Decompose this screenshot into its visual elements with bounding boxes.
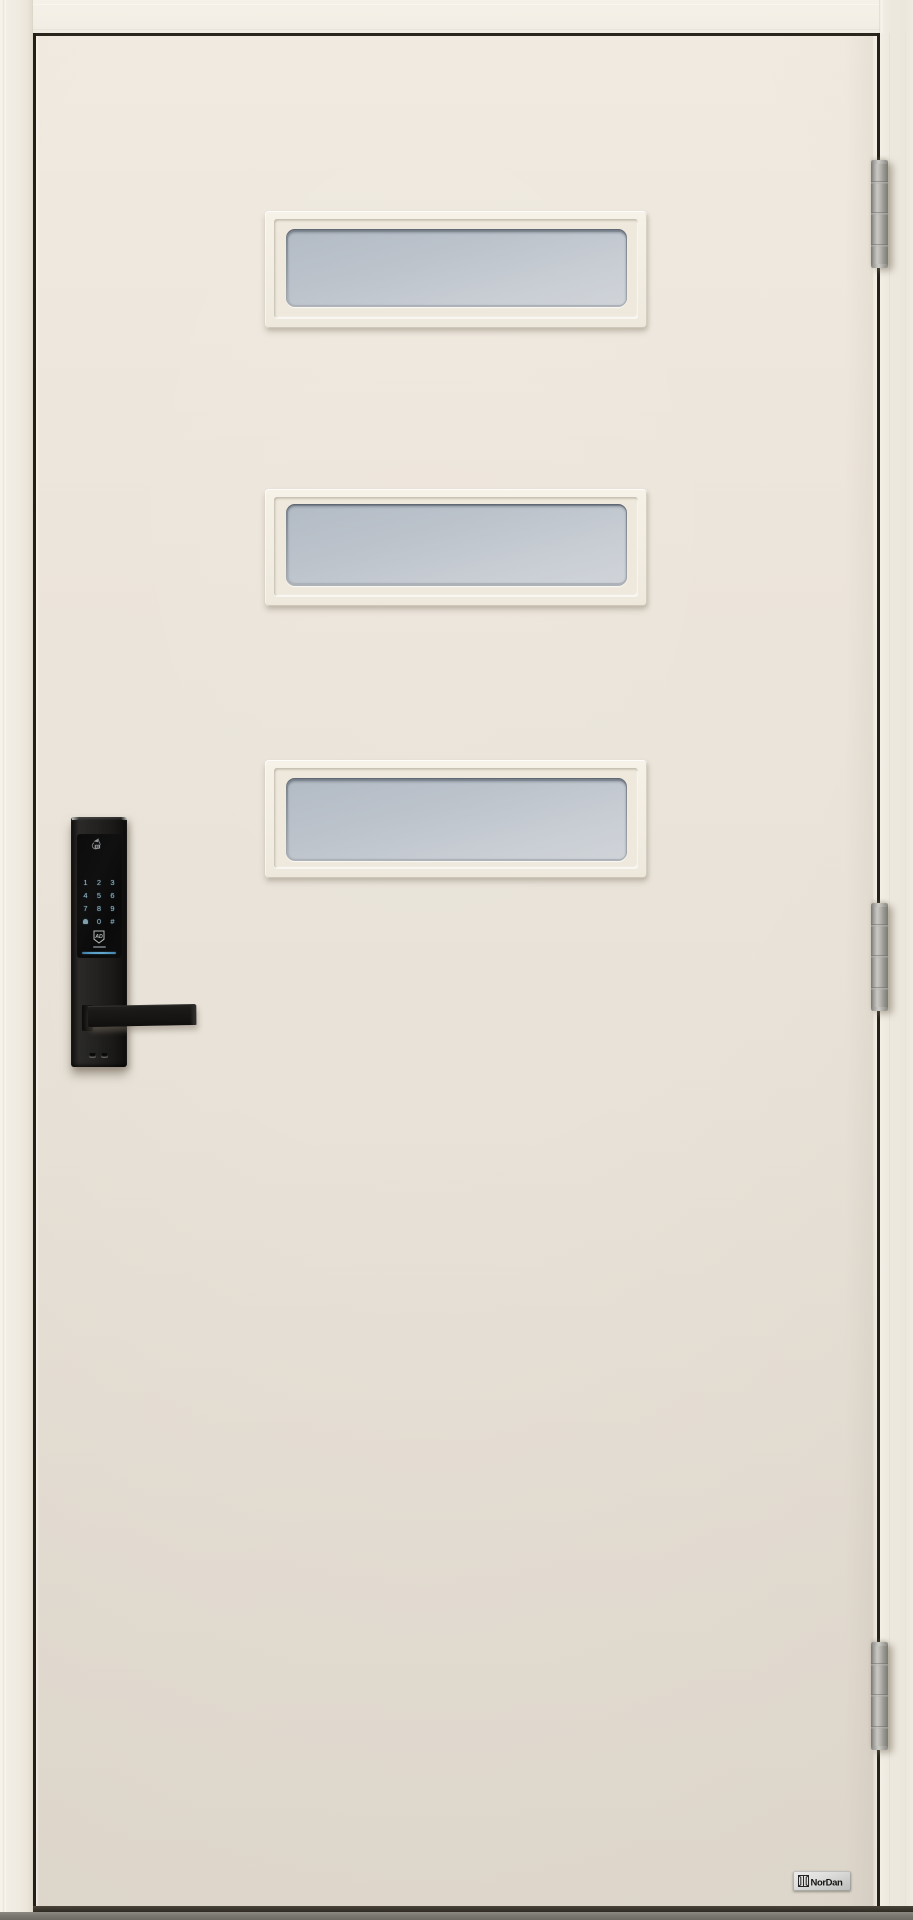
svg-text:AD: AD [94,934,103,940]
svg-text:NorDan: NorDan [811,1878,844,1889]
